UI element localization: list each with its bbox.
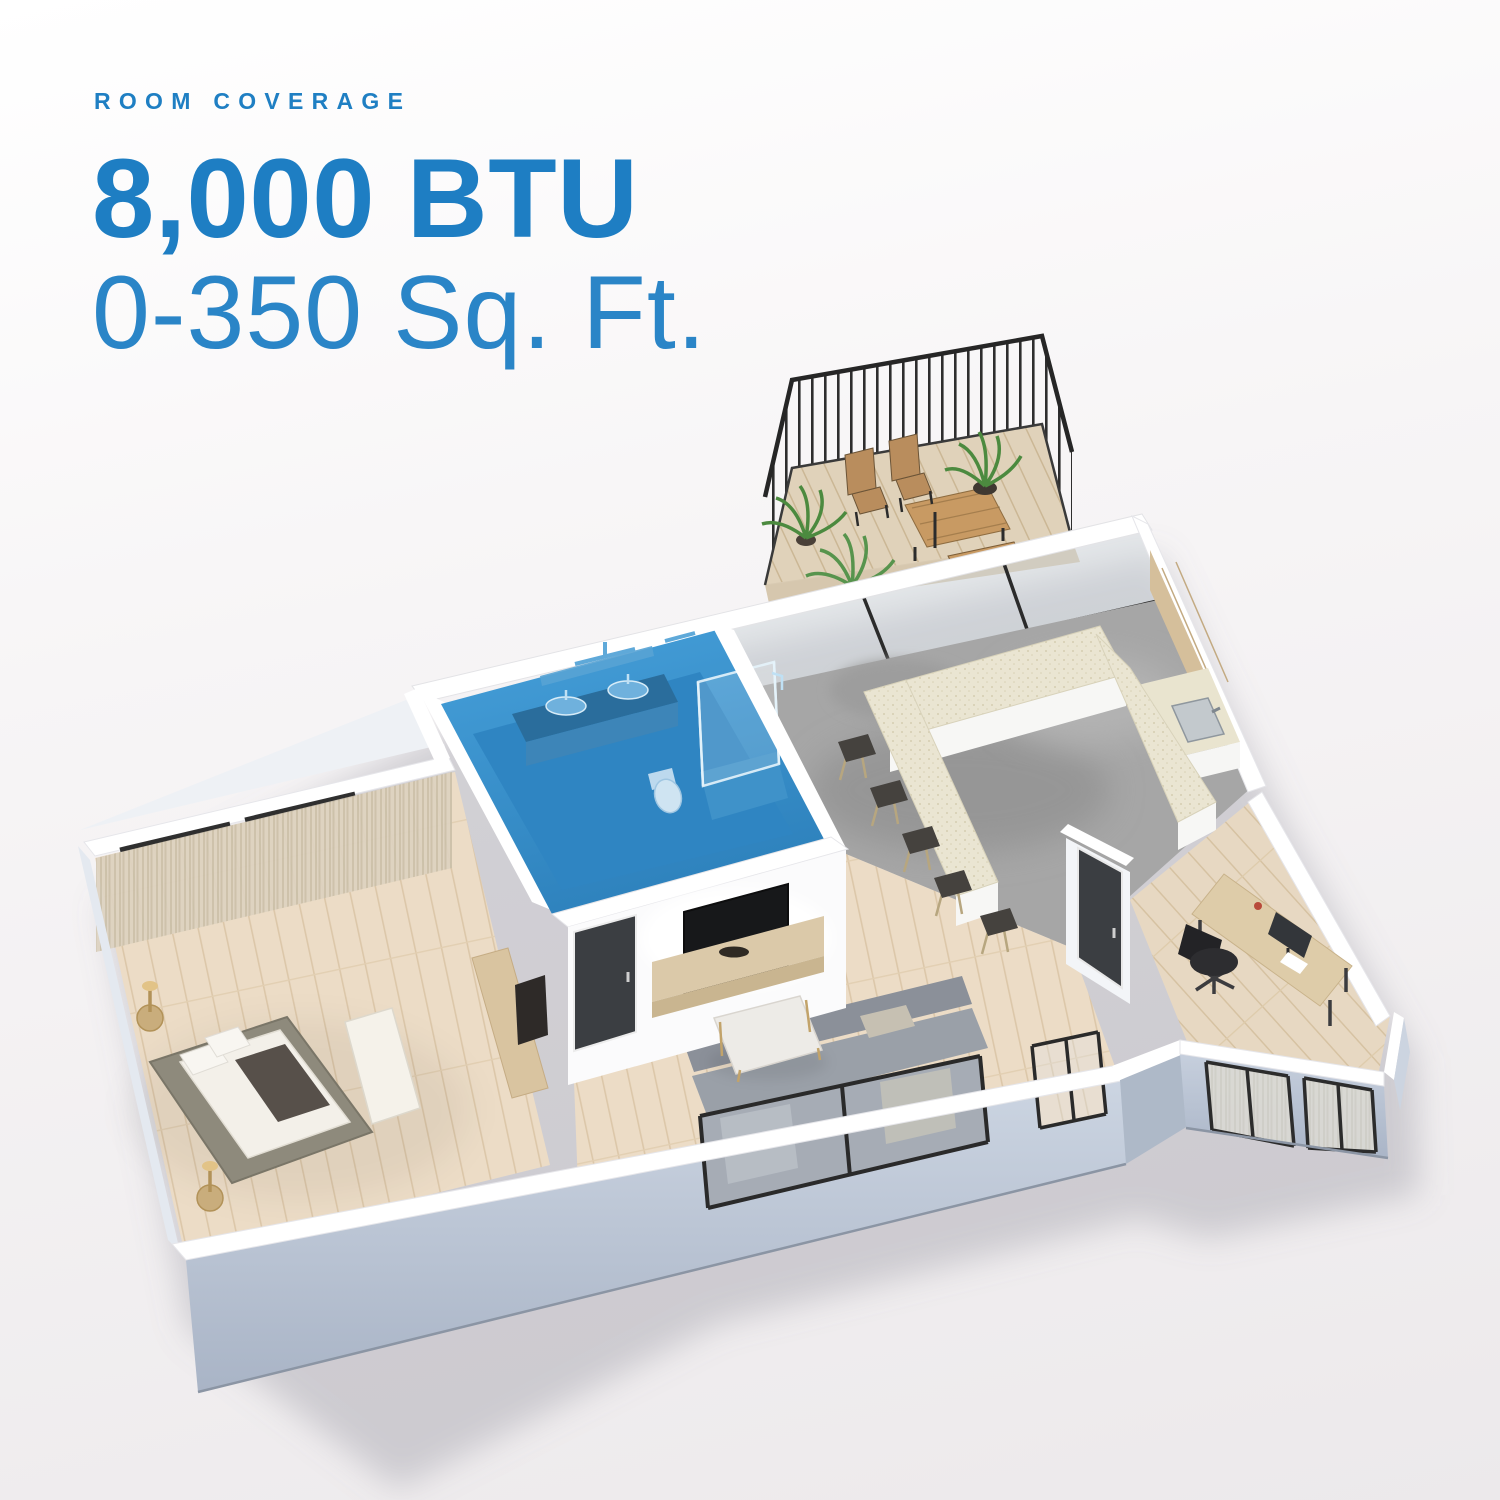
decor-bowl (719, 947, 749, 958)
page: { "header": { "eyebrow": "ROOM COVERAGE"… (0, 0, 1500, 1500)
interior-door (574, 915, 636, 1051)
leaning-art (515, 975, 548, 1045)
floorplan-illustration (0, 0, 1500, 1500)
office-window (1304, 1078, 1376, 1152)
